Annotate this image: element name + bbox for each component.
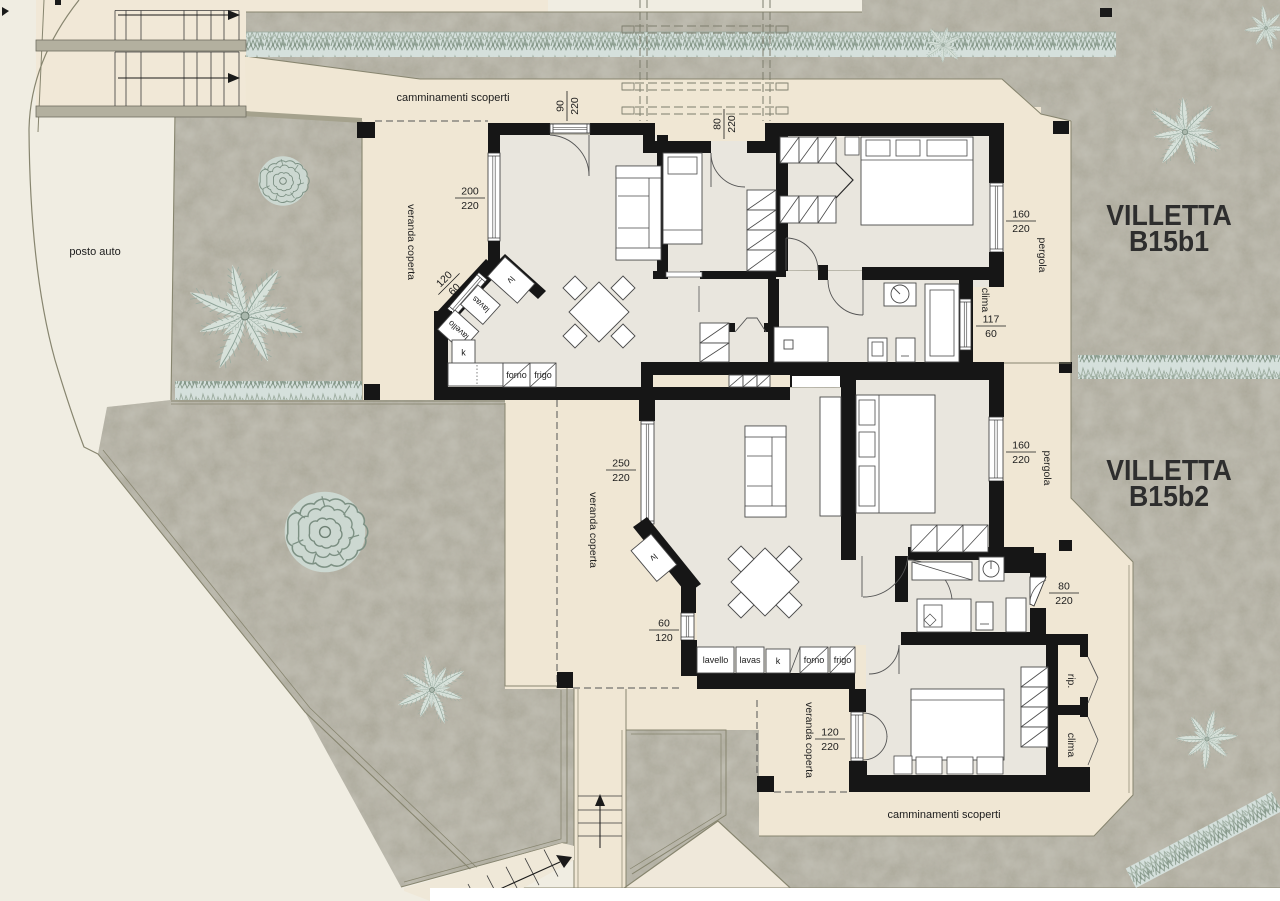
svg-text:veranda coperta: veranda coperta: [587, 492, 599, 568]
svg-text:clima: clima: [979, 288, 991, 313]
svg-text:220: 220: [821, 741, 839, 753]
svg-text:lavas: lavas: [739, 655, 761, 665]
svg-text:lavello: lavello: [703, 655, 729, 665]
svg-text:veranda coperta: veranda coperta: [405, 204, 417, 280]
svg-text:veranda coperta: veranda coperta: [803, 702, 815, 778]
svg-text:120: 120: [655, 632, 673, 644]
svg-text:160: 160: [1012, 209, 1030, 221]
svg-text:220: 220: [1055, 595, 1073, 607]
svg-text:250: 250: [612, 458, 630, 470]
svg-text:220: 220: [1012, 454, 1030, 466]
svg-text:220: 220: [726, 115, 738, 133]
svg-text:k: k: [776, 656, 781, 666]
svg-text:B15b1: B15b1: [1129, 225, 1209, 257]
svg-text:90: 90: [555, 100, 567, 112]
svg-text:60: 60: [658, 618, 670, 630]
svg-text:160: 160: [1012, 440, 1030, 452]
svg-text:80: 80: [712, 118, 724, 130]
svg-text:220: 220: [461, 200, 479, 212]
svg-text:posto auto: posto auto: [69, 246, 120, 258]
svg-text:camminamenti scoperti: camminamenti scoperti: [396, 92, 509, 104]
svg-text:k: k: [461, 348, 466, 358]
svg-text:220: 220: [612, 472, 630, 484]
svg-text:rip.: rip.: [1065, 674, 1077, 689]
svg-text:117: 117: [983, 314, 1000, 326]
svg-text:clima: clima: [1065, 733, 1077, 758]
svg-text:pergola: pergola: [1041, 450, 1053, 485]
svg-text:B15b2: B15b2: [1129, 480, 1209, 512]
svg-text:camminamenti scoperti: camminamenti scoperti: [887, 809, 1000, 821]
svg-text:200: 200: [461, 186, 479, 198]
svg-text:60: 60: [985, 328, 997, 340]
svg-text:80: 80: [1058, 581, 1070, 593]
svg-text:220: 220: [569, 97, 581, 115]
svg-text:220: 220: [1012, 223, 1030, 235]
svg-text:120: 120: [821, 727, 839, 739]
svg-text:pergola: pergola: [1036, 237, 1048, 272]
